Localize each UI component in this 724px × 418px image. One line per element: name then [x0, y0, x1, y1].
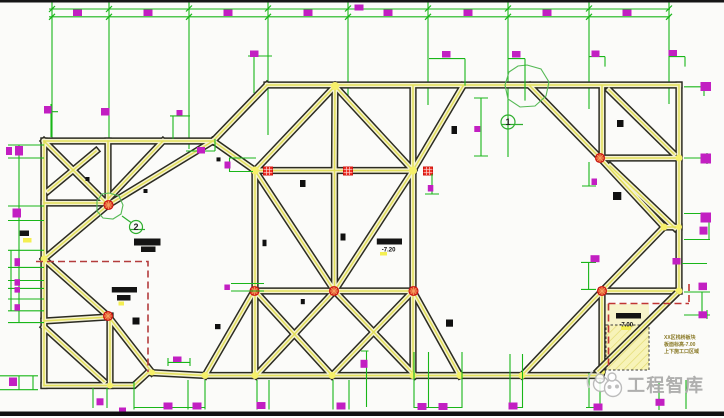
svg-text:-7.20: -7.20 — [382, 248, 396, 254]
svg-text:工程智库: 工程智库 — [627, 375, 703, 396]
svg-text:XX区栈桥板块: XX区栈桥板块 — [664, 334, 697, 341]
svg-text:1: 1 — [505, 117, 510, 127]
svg-text:-7.00: -7.00 — [619, 322, 633, 328]
svg-text:上下施工口区域: 上下施工口区域 — [664, 348, 699, 355]
svg-text:板面标高-7.00: 板面标高-7.00 — [664, 341, 696, 348]
svg-text:2: 2 — [133, 222, 138, 232]
